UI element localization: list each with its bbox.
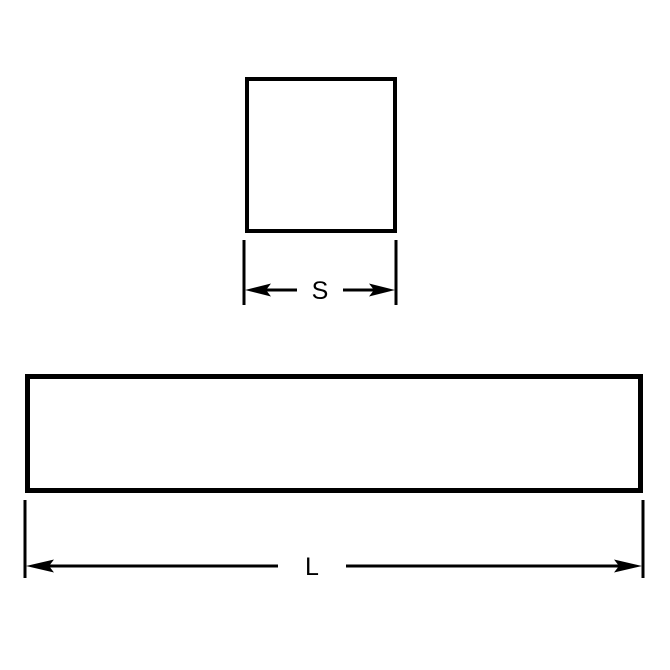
square-cross-section-view: S (244, 79, 396, 305)
square-side-dimension-label: S (312, 277, 329, 305)
bar-outline (28, 377, 641, 491)
bar-side-view: L (25, 377, 643, 582)
technical-drawing-canvas: S L (0, 0, 670, 670)
square-outline (247, 79, 395, 231)
bar-length-dimension-label: L (305, 553, 319, 581)
dimension-drawing-svg: S L (0, 0, 670, 670)
